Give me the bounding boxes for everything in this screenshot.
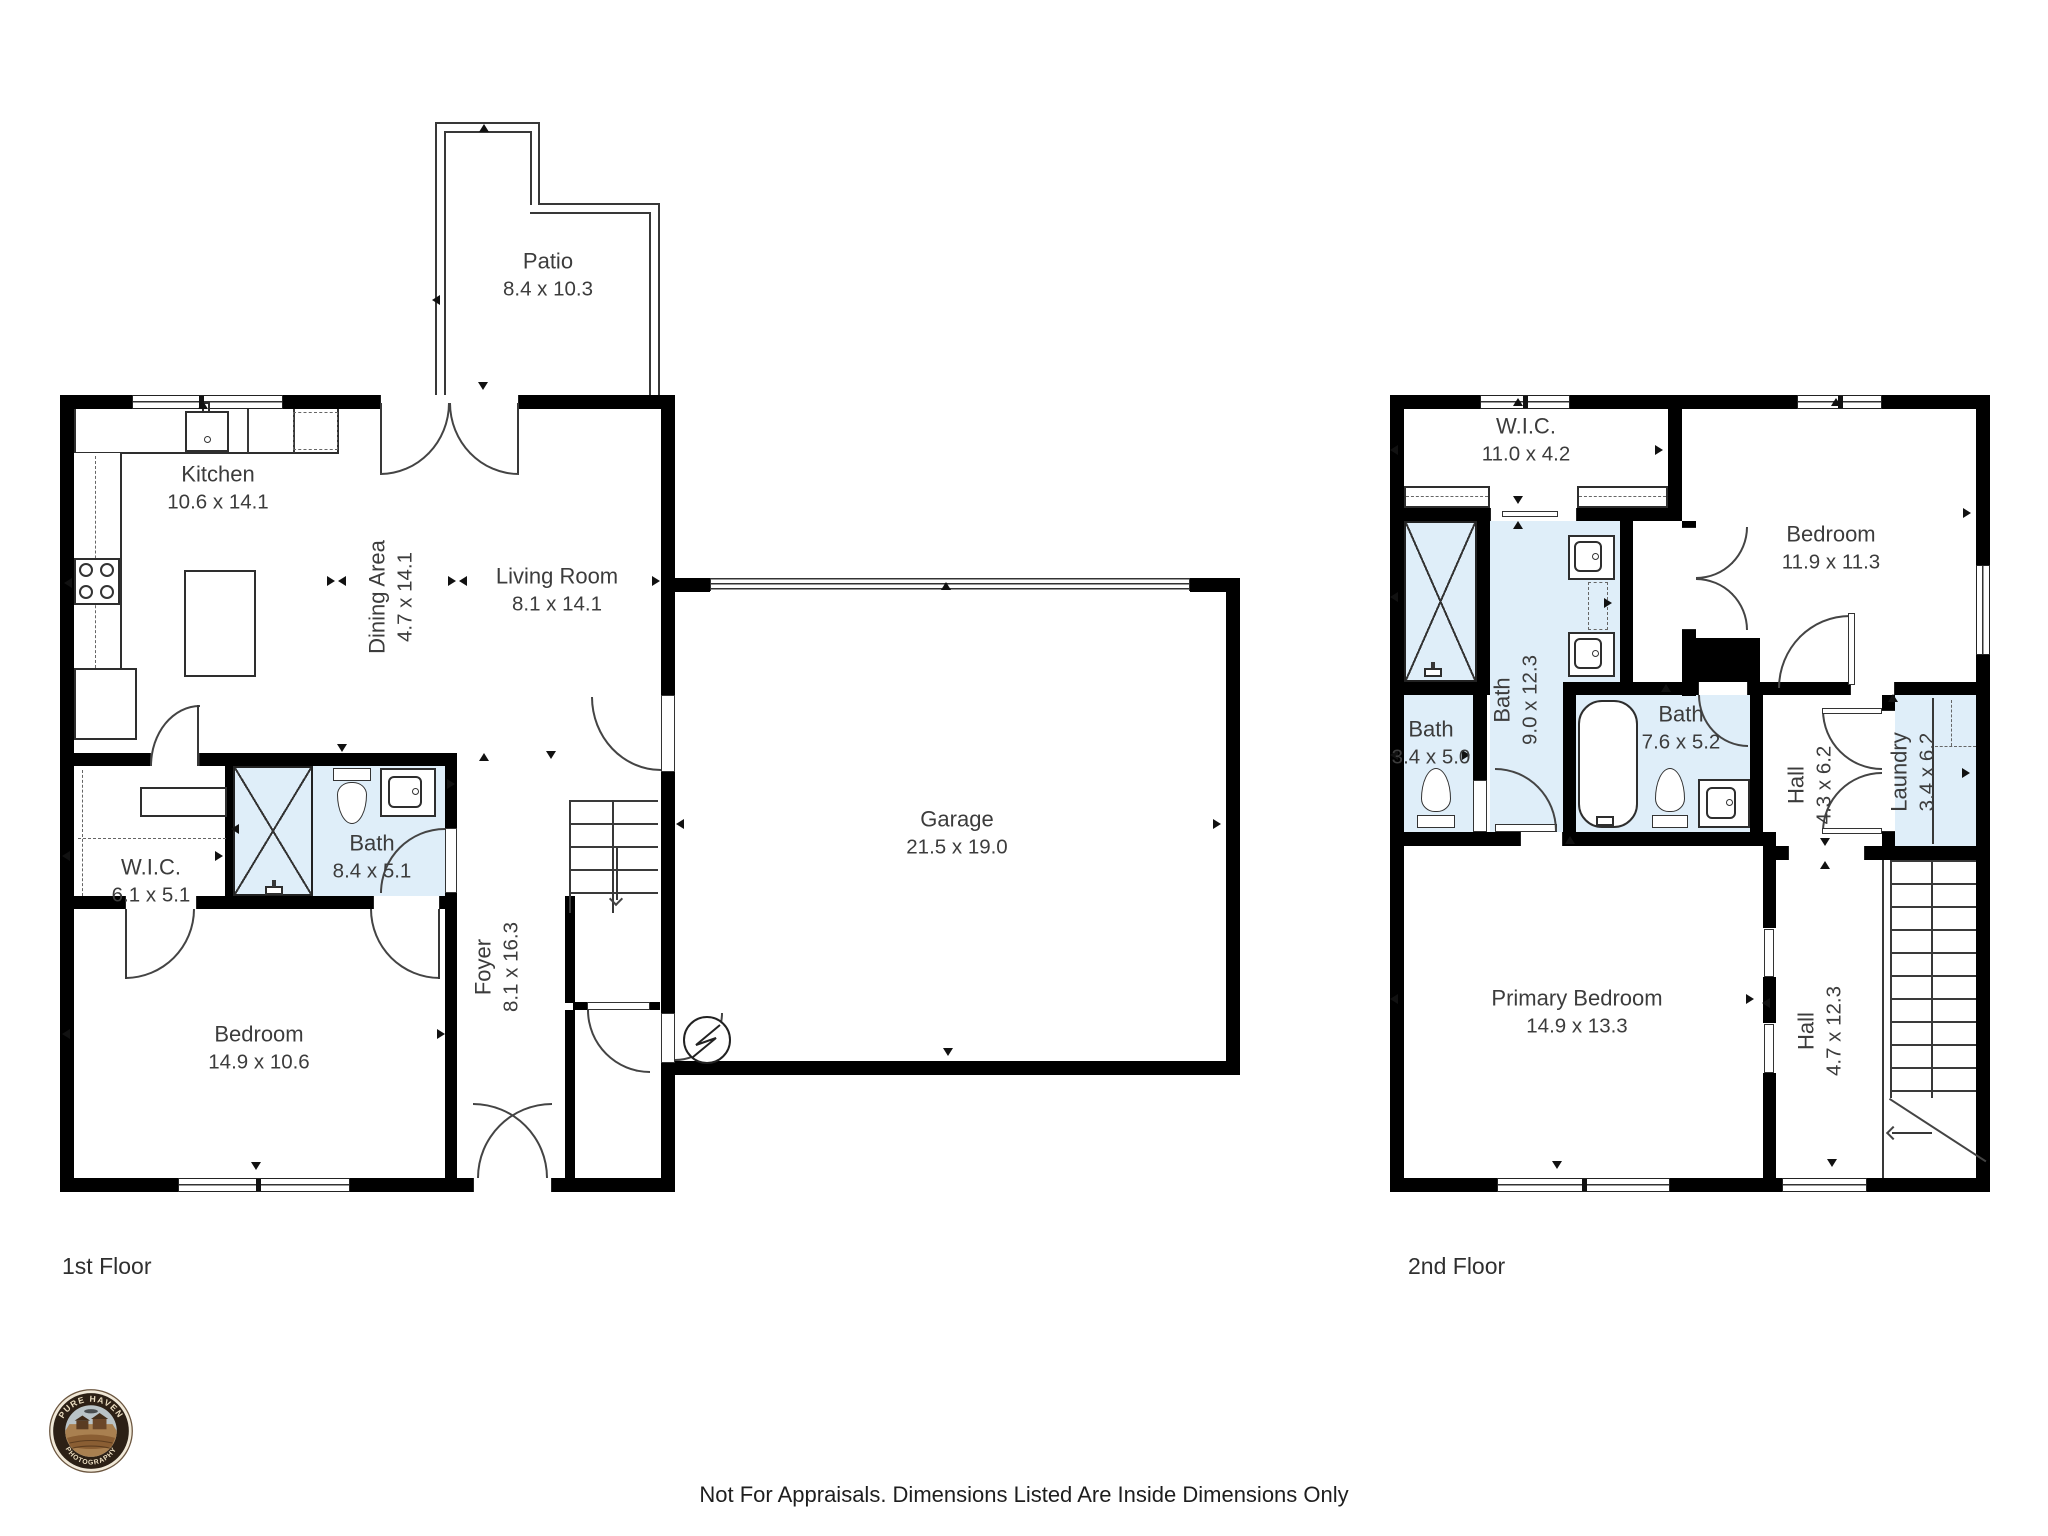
sliding-door <box>1764 1024 1774 1073</box>
patio-wall <box>538 203 660 205</box>
patio-wall <box>538 122 540 205</box>
dimension-arrow <box>215 851 223 861</box>
stair-divider <box>1931 860 1933 1098</box>
closet-shelf <box>140 787 227 817</box>
upper-cabinet <box>293 412 338 450</box>
room-label-wic: W.I.C.6.1 x 5.1 <box>112 853 191 908</box>
wall <box>1776 846 1788 860</box>
dimension-arrow <box>327 576 335 586</box>
dimension-arrow <box>1655 445 1663 455</box>
hall-opening <box>1788 846 1865 860</box>
window <box>1976 565 1990 655</box>
wall <box>1563 695 1576 832</box>
wall <box>675 1061 1226 1075</box>
stair-diagonal <box>1889 1098 1987 1162</box>
stair-edge <box>1882 860 1884 1178</box>
patio-wall-inner <box>444 131 446 395</box>
dimension-arrow <box>546 751 556 759</box>
door-leaf <box>661 1013 675 1063</box>
stove-burner <box>100 563 114 577</box>
counter-divider <box>247 409 249 453</box>
door-arc <box>370 909 440 979</box>
stair-edge <box>1890 860 1892 1098</box>
laundry-shelf <box>1935 746 1976 748</box>
wall <box>661 1063 675 1192</box>
patio-wall-inner <box>530 131 532 205</box>
door-arc <box>587 1010 650 1073</box>
sliding-door <box>1502 511 1558 517</box>
dimension-arrow <box>447 779 455 789</box>
door-leaf <box>1473 780 1487 832</box>
dimension-arrow <box>1963 508 1971 518</box>
dimension-arrow <box>943 1048 953 1056</box>
wall <box>60 753 150 766</box>
refrigerator <box>74 668 137 740</box>
door-leaf <box>197 705 199 766</box>
dimension-arrow <box>1513 398 1523 406</box>
wall <box>573 1002 587 1010</box>
door-arc <box>1696 578 1748 630</box>
closet-rod <box>82 770 84 896</box>
dimension-arrow <box>1661 684 1671 692</box>
laundry-shelf <box>1951 700 1953 746</box>
dimension-arrow <box>941 582 951 590</box>
door-arc <box>150 705 200 766</box>
dimension-arrow <box>1888 694 1898 702</box>
wall <box>350 1178 473 1192</box>
bathtub <box>1578 700 1638 828</box>
closet-rod <box>1579 496 1666 498</box>
room-label-bath76: Bath7.6 x 5.2 <box>1642 700 1721 755</box>
wall <box>565 1010 575 1178</box>
dimension-arrow <box>62 851 70 861</box>
door-opening <box>373 896 440 909</box>
wall <box>1865 846 1976 860</box>
door-arc <box>591 697 661 771</box>
wall <box>1668 409 1682 521</box>
room-label-kitchen: Kitchen10.6 x 14.1 <box>167 460 268 515</box>
room-label-hall47: Hall4.7 x 12.3 <box>1792 986 1847 1076</box>
wall <box>675 578 710 592</box>
wall <box>1390 395 1480 409</box>
dimension-arrow <box>64 578 72 588</box>
patio-wall <box>435 122 437 395</box>
window <box>178 1178 350 1192</box>
wall <box>1563 832 1776 846</box>
wall <box>197 896 373 909</box>
dimension-arrow <box>652 576 660 586</box>
wall <box>60 1178 178 1192</box>
wall <box>60 395 74 1192</box>
dimension-arrow <box>1962 768 1970 778</box>
door-leaf <box>1848 613 1855 685</box>
photography-logo: PURE HAVEN PHOTOGRAPHY <box>48 1388 134 1474</box>
wall <box>1390 409 1404 1192</box>
front-door-opening <box>473 1178 552 1192</box>
wall <box>1404 508 1490 521</box>
wall <box>1763 846 1776 928</box>
wall <box>1976 409 1990 565</box>
patio-wall-inner <box>530 212 650 214</box>
dimension-arrow <box>676 819 684 829</box>
room-label-bath-small: Bath3.4 x 5.0 <box>1392 715 1471 770</box>
wall <box>445 893 457 1178</box>
door-leaf <box>587 1002 650 1010</box>
wall <box>650 1002 660 1010</box>
dimension-arrow <box>1213 819 1221 829</box>
door-leaf <box>661 695 675 772</box>
shower-head-stem <box>272 880 276 887</box>
door-arc <box>449 403 519 475</box>
wall <box>1895 682 1976 695</box>
wall <box>1404 832 1520 846</box>
dimension-arrow <box>1513 521 1523 529</box>
dimension-arrow <box>1604 598 1612 608</box>
door-arc <box>1696 527 1748 579</box>
sink-drain <box>1726 799 1733 806</box>
door-leaf <box>1822 708 1882 714</box>
tub-faucet <box>1596 816 1614 826</box>
room-label-hall43: Hall4.3 x 6.2 <box>1782 746 1837 825</box>
wall <box>1882 832 1895 846</box>
dimension-arrow <box>1565 836 1575 844</box>
dimension-arrow <box>1390 994 1398 1004</box>
dimension-arrow <box>338 576 346 586</box>
wall <box>1404 682 1490 695</box>
wall <box>1620 521 1633 682</box>
stair-edge <box>569 800 571 913</box>
dimension-arrow <box>479 124 489 132</box>
disclaimer-text: Not For Appraisals. Dimensions Listed Ar… <box>0 1482 2048 1508</box>
sink-drain <box>204 436 211 443</box>
room-label-foyer: Foyer8.1 x 16.3 <box>469 922 524 1012</box>
wall <box>552 1178 675 1192</box>
window-mullion <box>1523 396 1528 408</box>
dimension-arrow <box>231 824 239 834</box>
wall <box>283 395 380 409</box>
shower-head-stem <box>1431 662 1435 668</box>
room-label-patio: Patio8.4 x 10.3 <box>503 247 593 302</box>
wall <box>1763 1073 1776 1178</box>
closet-rod <box>1406 496 1488 498</box>
shower-head <box>1424 668 1442 677</box>
dimension-arrow <box>62 1029 70 1039</box>
dimension-arrow <box>459 576 467 586</box>
closet-opening <box>1682 527 1696 630</box>
dimension-arrow <box>1831 398 1841 406</box>
dimension-arrow <box>251 1162 261 1170</box>
staircase <box>1890 860 1976 1098</box>
window-mullion <box>1582 1179 1587 1191</box>
wall <box>1750 695 1763 846</box>
wall <box>200 753 457 766</box>
dimension-arrow <box>1552 1161 1562 1169</box>
room-label-garage: Garage21.5 x 19.0 <box>906 805 1007 860</box>
room-label-wic2: W.I.C.11.0 x 4.2 <box>1482 412 1571 467</box>
wall <box>1882 395 1990 409</box>
toilet <box>1652 815 1688 828</box>
floor-label-1: 1st Floor <box>62 1253 151 1280</box>
dimension-arrow <box>1820 861 1830 869</box>
wall <box>1976 655 1990 1192</box>
sink-drain <box>1592 650 1599 657</box>
door-arc <box>380 403 450 475</box>
wall <box>1570 395 1797 409</box>
dimension-arrow <box>479 753 489 761</box>
patio-wall-inner <box>649 212 651 397</box>
shower <box>1404 521 1477 682</box>
room-label-bedroom2: Bedroom11.9 x 11.3 <box>1782 520 1880 575</box>
door-opening <box>1698 682 1748 695</box>
dimension-arrow <box>448 576 456 586</box>
dimension-arrow <box>198 401 208 409</box>
sliding-door <box>1764 929 1774 977</box>
stove-burner <box>79 563 93 577</box>
wall <box>1390 1178 1497 1192</box>
closet-rod <box>78 838 226 840</box>
window <box>1782 1178 1867 1192</box>
wall <box>1577 508 1668 521</box>
shower <box>233 766 313 896</box>
wall <box>1226 592 1240 1075</box>
door-arc <box>125 909 195 979</box>
door-leaf <box>445 828 457 893</box>
sink-drain <box>412 788 419 795</box>
wall <box>445 753 457 828</box>
wall <box>1670 1178 1782 1192</box>
stove-burner <box>100 585 114 599</box>
room-label-bath: Bath8.4 x 5.1 <box>333 829 412 884</box>
shower-head <box>265 886 283 895</box>
dimension-arrow <box>1820 838 1830 846</box>
floor-label-2: 2nd Floor <box>1408 1253 1505 1280</box>
sink-drain <box>1592 553 1599 560</box>
room-label-dining: Dining Area4.7 x 14.1 <box>363 540 418 654</box>
door-leaf <box>380 403 382 473</box>
wall <box>661 772 675 1013</box>
wall <box>661 409 675 695</box>
stove-burner <box>79 585 93 599</box>
door-leaf <box>125 909 127 979</box>
wall <box>1473 695 1487 780</box>
dimension-arrow <box>478 382 488 390</box>
patio-wall <box>658 203 660 397</box>
dimension-arrow <box>1513 496 1523 504</box>
wall <box>519 395 675 409</box>
room-label-primary: Primary Bedroom14.9 x 13.3 <box>1491 984 1662 1039</box>
room-label-bedroom: Bedroom14.9 x 10.6 <box>208 1020 309 1075</box>
wall <box>1190 578 1240 592</box>
dimension-arrow <box>1762 998 1770 1008</box>
door-arc <box>1778 615 1850 688</box>
window <box>1480 395 1570 409</box>
window-mullion <box>256 1179 261 1191</box>
room-label-living: Living Room8.1 x 14.1 <box>496 562 618 617</box>
door-opening <box>1520 832 1563 846</box>
dimension-arrow <box>1746 994 1754 1004</box>
stair-up-arrow <box>1886 1126 1900 1140</box>
kitchen-sink <box>185 411 229 452</box>
toilet <box>1417 815 1455 828</box>
dimension-arrow <box>1390 592 1398 602</box>
wall <box>1563 682 1698 695</box>
toilet <box>333 768 371 781</box>
electrical-meter-icon <box>682 1015 732 1065</box>
dimension-arrow <box>1390 445 1398 455</box>
wall <box>1867 1178 1990 1192</box>
door-leaf <box>517 403 519 473</box>
room-label-bath-big: Bath9.0 x 12.3 <box>1488 655 1543 745</box>
dimension-arrow <box>1827 1159 1837 1167</box>
dimension-arrow <box>437 1029 445 1039</box>
kitchen-island <box>184 570 256 677</box>
door-leaf <box>1822 828 1882 834</box>
door-leaf <box>438 909 440 979</box>
window <box>1497 1178 1670 1192</box>
dimension-arrow <box>337 744 347 752</box>
dimension-arrow <box>432 295 440 305</box>
floor-plan-canvas: Patio8.4 x 10.3 Kitchen10.6 x 14.1 Dinin… <box>0 0 2048 1536</box>
room-label-laundry: Laundry3.4 x 6.2 <box>1885 732 1940 812</box>
